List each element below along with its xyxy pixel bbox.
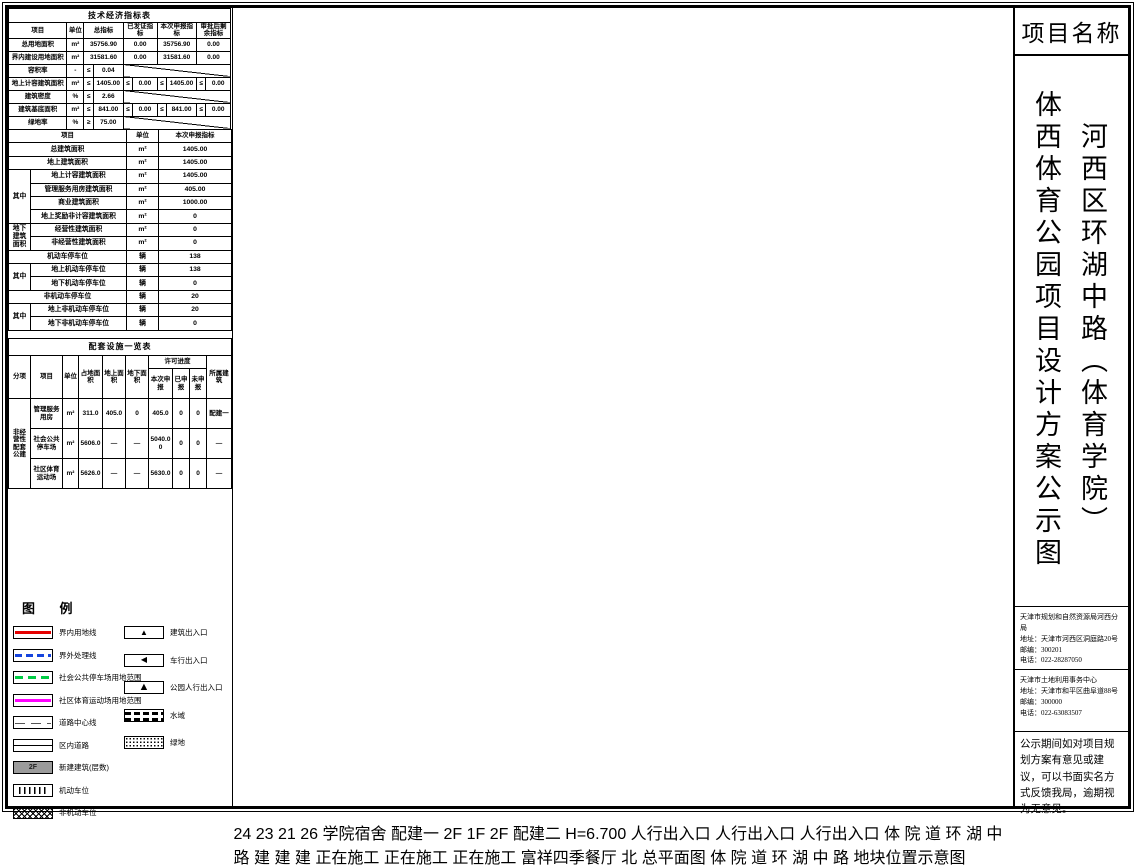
legend-water-swatch-icon bbox=[124, 709, 164, 722]
table-cell: ≤ bbox=[196, 103, 206, 116]
building-peijian-1: 配建一 2F 1F bbox=[391, 826, 490, 843]
pedestrian-entrance-icon: 人行出入口 人行出入口 人行出入口 bbox=[631, 826, 884, 843]
table-cell: 辆 bbox=[127, 317, 159, 330]
building-mark: 建 bbox=[254, 850, 270, 867]
agency2-postcode: 邮编：300000 bbox=[1020, 697, 1123, 708]
table-cell: ≤ bbox=[84, 103, 94, 116]
agency1-phone: 电话：022-28287050 bbox=[1020, 655, 1123, 666]
project-name-header: 项目名称 bbox=[1015, 8, 1128, 56]
legend-label: 公园人行出入口 bbox=[170, 682, 223, 693]
table-cell: — bbox=[126, 459, 149, 489]
table-cell: 405.0 bbox=[149, 399, 173, 429]
locmap-caption: 地块位置示意图 bbox=[853, 850, 965, 867]
table-cell: 0 bbox=[159, 277, 232, 290]
table-cell: 地下建筑面积 bbox=[9, 223, 31, 250]
table-cell: 本次申报 bbox=[149, 369, 173, 399]
agency2-name: 天津市土地利用事务中心 bbox=[1020, 675, 1123, 686]
legend-item: 区内道路 bbox=[13, 739, 142, 752]
table-cell: 辆 bbox=[127, 277, 159, 290]
table-cell: 经营性建筑面积 bbox=[31, 223, 127, 236]
legend-glyph-icon: ▲ bbox=[125, 627, 163, 638]
table-cell: 地下面积 bbox=[126, 356, 149, 399]
under-construction-label: 正在施工 bbox=[384, 850, 448, 867]
legend-item: 道路中心线 bbox=[13, 716, 142, 729]
table-cell: ≥ bbox=[84, 116, 94, 129]
building2-floor-label: 2F bbox=[490, 826, 509, 843]
pedestrian-entrance-icon: 人行出入口 人行出入口 人行出入口 bbox=[631, 826, 884, 843]
table-cell: 1405.00 bbox=[93, 77, 123, 90]
legend-item: 社区体育运动场用地范围 bbox=[13, 694, 142, 707]
table-cell: 总指标 bbox=[84, 23, 123, 39]
table-cell: 0.00 bbox=[196, 38, 230, 51]
north-arrow: 北 bbox=[621, 850, 641, 867]
table-cell: 占地面积 bbox=[79, 356, 103, 399]
table-cell: 商业建筑面积 bbox=[31, 196, 127, 209]
table-cell: 405.0 bbox=[103, 399, 126, 429]
left-panel: 技术经济指标表项目单位总指标已发证指标本次申报指标审批后剩余指标总用地面积m²3… bbox=[8, 8, 233, 806]
table-cell: 地上非机动车停车位 bbox=[31, 304, 127, 317]
entrance-label: 人行出入口 bbox=[800, 826, 880, 843]
table-cell: 0 bbox=[159, 223, 232, 236]
table-cell: 单位 bbox=[67, 23, 84, 39]
table-cell: 未申报 bbox=[190, 369, 207, 399]
table-cell: 辆 bbox=[127, 263, 159, 276]
table-cell: 0.00 bbox=[123, 51, 157, 64]
legend-label: 区内道路 bbox=[59, 740, 89, 751]
table-cell: 0 bbox=[173, 459, 190, 489]
table-cell: m² bbox=[127, 183, 159, 196]
table-cell: 社会公共停车场 bbox=[31, 429, 63, 459]
table-cell: m² bbox=[127, 196, 159, 209]
table-cell: 841.00 bbox=[93, 103, 123, 116]
table-cell: 地下非机动车停车位 bbox=[31, 317, 127, 330]
locmap-road-char: 院 bbox=[731, 850, 747, 867]
table-cell: 2.66 bbox=[93, 90, 123, 103]
table-cell: 所属建筑 bbox=[207, 356, 232, 399]
table-cell: 机动车停车位 bbox=[9, 250, 127, 263]
table-cell: 1405.00 bbox=[159, 143, 232, 156]
legend-right-column: ▲建筑出入口◀车行出入口▲公园人行出入口水域绿地 bbox=[124, 626, 223, 749]
legend: 图 例 界内用地线界外处理线社会公共停车场用地范围社区体育运动场用地范围道路中心… bbox=[8, 592, 232, 806]
legend-item: ◀车行出入口 bbox=[124, 654, 223, 667]
table-cell: 1405.00 bbox=[159, 170, 232, 183]
road-huanhu-char: 环 bbox=[945, 826, 961, 843]
vehicle-entrance-icon: 人行出入口 人行出入口 人行出入口 bbox=[631, 826, 884, 843]
public-notice-text: 公示期间如对项目规划方案有意见或建议，可以书面实名方式反馈我局，逾期视为无意见。 bbox=[1015, 731, 1128, 806]
legend-magenta-swatch-icon bbox=[13, 694, 53, 707]
legend-item: 绿地 bbox=[124, 736, 223, 749]
table-cell: 0.00 bbox=[123, 38, 157, 51]
legend-vent-swatch-icon: ◀ bbox=[124, 654, 164, 667]
restaurant-label: 富祥四季餐厅 bbox=[521, 850, 617, 867]
location-parcel: 体 院 道 环 湖 中 路 地块位置示意图 bbox=[710, 850, 965, 867]
table-cell: 审批后剩余指标 bbox=[196, 23, 230, 39]
table-cell: 其中 bbox=[9, 263, 31, 290]
road-huanhu-char: 中 bbox=[986, 826, 1002, 843]
legend-left-column: 界内用地线界外处理线社会公共停车场用地范围社区体育运动场用地范围道路中心线区内道… bbox=[13, 626, 142, 819]
facility-list-table: 配套设施一览表分项项目单位占地面积地上面积地下面积许可进度所属建筑本次申报已申报… bbox=[8, 338, 232, 489]
table-cell: 841.00 bbox=[167, 103, 197, 116]
agency2-phone: 电话：022-63083507 bbox=[1020, 708, 1123, 719]
table-title: 配套设施一览表 bbox=[9, 339, 232, 356]
project-title-line2: 体西体育公园项目设计方案公示图 bbox=[1027, 90, 1066, 570]
table-cell: m² bbox=[67, 38, 84, 51]
building2-height-label: H=6.700 bbox=[565, 826, 626, 843]
locmap-road-char: 中 bbox=[813, 850, 829, 867]
table-cell: m² bbox=[63, 429, 79, 459]
table-cell: 建筑密度 bbox=[9, 90, 67, 103]
table-cell: m² bbox=[127, 143, 159, 156]
table-cell: — bbox=[207, 429, 232, 459]
table-cell: 5626.0 bbox=[79, 459, 103, 489]
table-cell: 本次申报指标 bbox=[159, 130, 232, 143]
table-title: 技术经济指标表 bbox=[9, 9, 231, 23]
road-tiyuandao-char: 体 bbox=[884, 826, 900, 843]
table-cell: 非经营性建筑面积 bbox=[31, 237, 127, 250]
table-cell: 单位 bbox=[127, 130, 159, 143]
legend-green-swatch-icon bbox=[13, 671, 53, 684]
plan-caption: 总平面图 bbox=[642, 850, 710, 867]
table-cell: 138 bbox=[159, 263, 232, 276]
table-cell: 分项 bbox=[9, 356, 31, 399]
project-title-line1: 河西区环湖中路（体育学院） bbox=[1073, 122, 1112, 538]
table-cell: ≤ bbox=[157, 103, 167, 116]
table-cell: 容积率 bbox=[9, 64, 67, 77]
agency1-name: 天津市规划和自然资源局河西分局 bbox=[1020, 612, 1123, 634]
legend-red-swatch-icon bbox=[13, 626, 53, 639]
building1-floor1-label: 1F bbox=[467, 826, 486, 843]
road-huanhu-char: 湖 bbox=[966, 826, 982, 843]
vehicle-entrance-icon: 人行出入口 人行出入口 人行出入口 bbox=[631, 826, 884, 843]
table-cell: 配建一 bbox=[207, 399, 232, 429]
legend-item: ▲公园人行出入口 bbox=[124, 681, 223, 694]
table-cell: % bbox=[67, 116, 84, 129]
table-cell: 地上奖励非计容建筑面积 bbox=[31, 210, 127, 223]
table-cell: m² bbox=[67, 77, 84, 90]
table-cell: 地上面积 bbox=[103, 356, 126, 399]
block-number: 26 bbox=[300, 826, 318, 843]
table-cell: 311.0 bbox=[79, 399, 103, 429]
table-cell: ≤ bbox=[84, 64, 94, 77]
table-cell: 管理服务用房建筑面积 bbox=[31, 183, 127, 196]
legend-center-swatch-icon bbox=[13, 716, 53, 729]
table-cell: 35756.90 bbox=[157, 38, 196, 51]
table-cell: 0 bbox=[173, 399, 190, 429]
table-cell bbox=[123, 90, 230, 103]
legend-label: 绿地 bbox=[170, 737, 185, 748]
table-cell: 20 bbox=[159, 304, 232, 317]
table-cell: 31581.60 bbox=[157, 51, 196, 64]
locmap-road-char: 湖 bbox=[792, 850, 808, 867]
table-cell: ≤ bbox=[157, 77, 167, 90]
table-cell: 界内建设用地面积 bbox=[9, 51, 67, 64]
table-cell: 非经营性配套公建 bbox=[9, 399, 31, 489]
table-cell: 辆 bbox=[127, 250, 159, 263]
table-cell: 建筑基底面积 bbox=[9, 103, 67, 116]
table-cell: 辆 bbox=[127, 304, 159, 317]
vehicle-entrance-icon: 人行出入口 人行出入口 人行出入口 bbox=[631, 826, 884, 843]
table-cell: 地上机动车停车位 bbox=[31, 263, 127, 276]
legend-glyph-icon: 2F bbox=[14, 762, 52, 773]
table-cell: 地上计容建筑面积 bbox=[9, 77, 67, 90]
table-cell: 0.00 bbox=[133, 77, 157, 90]
legend-label: 机动车位 bbox=[59, 785, 89, 796]
entrance-label: 人行出入口 bbox=[631, 826, 711, 843]
legend-item: 界内用地线 bbox=[13, 626, 142, 639]
table-cell: 非机动车停车位 bbox=[9, 290, 127, 303]
locmap-road-char: 环 bbox=[772, 850, 788, 867]
legend-label: 界外处理线 bbox=[59, 650, 97, 661]
table-cell: 0 bbox=[126, 399, 149, 429]
road-tiyuandao-char: 道 bbox=[925, 826, 941, 843]
building2-label: 配建二 bbox=[513, 826, 561, 843]
table-cell: 0.00 bbox=[206, 77, 231, 90]
drawing-sheet: 技术经济指标表项目单位总指标已发证指标本次申报指标审批后剩余指标总用地面积m²3… bbox=[5, 5, 1131, 809]
dormitory-label: 学院宿舍 bbox=[323, 826, 387, 843]
agency2-address: 地址：天津市和平区曲阜道88号 bbox=[1020, 686, 1123, 697]
table-cell: — bbox=[126, 429, 149, 459]
agency-block-1: 天津市规划和自然资源局河西分局 地址：天津市河西区洞庭路20号 邮编：30020… bbox=[1015, 606, 1128, 670]
table-cell: 绿地率 bbox=[9, 116, 67, 129]
table-cell: 405.00 bbox=[159, 183, 232, 196]
under-construction-label: 正在施工 bbox=[452, 850, 516, 867]
locmap-road-char: 道 bbox=[751, 850, 767, 867]
legend-nonmotor-swatch-icon bbox=[13, 806, 53, 819]
legend-greenarea-swatch-icon bbox=[124, 736, 164, 749]
table-cell: 5040.00 bbox=[149, 429, 173, 459]
table-cell: 其中 bbox=[9, 170, 31, 224]
table-cell: 其中 bbox=[9, 304, 31, 331]
legend-label: 新建建筑(层数) bbox=[59, 762, 109, 773]
table-cell: 0 bbox=[190, 459, 207, 489]
table-cell: m² bbox=[67, 103, 84, 116]
building-peijian-2: 2F 配建二 H=6.700 bbox=[490, 826, 631, 843]
table-cell: 地上建筑面积 bbox=[9, 156, 127, 169]
table-cell: 0.00 bbox=[196, 51, 230, 64]
table-cell: 5606.0 bbox=[79, 429, 103, 459]
table-cell: 138 bbox=[159, 250, 232, 263]
legend-label: 道路中心线 bbox=[59, 717, 97, 728]
table-cell: 0 bbox=[190, 429, 207, 459]
table-cell: 0.00 bbox=[206, 103, 231, 116]
table-cell: ≤ bbox=[196, 77, 206, 90]
table-cell: 项目 bbox=[31, 356, 63, 399]
legend-label: 非机动车位 bbox=[59, 807, 97, 818]
location-map: 体 院 道 环 湖 中 路 地块位置示意图 bbox=[710, 850, 965, 867]
table-cell: m² bbox=[63, 399, 79, 429]
tech-indicators-table: 技术经济指标表项目单位总指标已发证指标本次申报指标审批后剩余指标总用地面积m²3… bbox=[8, 8, 231, 146]
table-cell: m² bbox=[127, 237, 159, 250]
table-cell: 单位 bbox=[63, 356, 79, 399]
table-cell: ≤ bbox=[123, 103, 133, 116]
block-number: 23 bbox=[256, 826, 274, 843]
table-cell: 社区体育运动场 bbox=[31, 459, 63, 489]
table-cell: 已发证指标 bbox=[123, 23, 157, 39]
table-cell: 1405.00 bbox=[167, 77, 197, 90]
legend-title: 图 例 bbox=[22, 598, 74, 617]
table-cell: 地下机动车停车位 bbox=[31, 277, 127, 290]
table-cell: m² bbox=[127, 223, 159, 236]
legend-glyph-icon: ◀ bbox=[125, 655, 163, 666]
table-cell: - bbox=[67, 64, 84, 77]
block-number: 24 bbox=[234, 826, 252, 843]
table-cell: 0 bbox=[159, 317, 232, 330]
table-cell: 5630.0 bbox=[149, 459, 173, 489]
table-cell: — bbox=[103, 429, 126, 459]
legend-glyph-icon: ▲ bbox=[125, 682, 163, 693]
north-label: 北 bbox=[621, 850, 637, 867]
table-cell: 总用地面积 bbox=[9, 38, 67, 51]
legend-newbld-swatch-icon: 2F bbox=[13, 761, 53, 774]
legend-item: ▲建筑出入口 bbox=[124, 626, 223, 639]
project-title: 河西区环湖中路（体育学院） 体西体育公园项目设计方案公示图 bbox=[1015, 56, 1128, 604]
agency-block-2: 天津市土地利用事务中心 地址：天津市和平区曲阜道88号 邮编：300000 电话… bbox=[1015, 669, 1128, 732]
entrance-label: 人行出入口 bbox=[715, 826, 795, 843]
table-cell: m² bbox=[127, 156, 159, 169]
table-cell: m² bbox=[63, 459, 79, 489]
road-huanhu-char: 路 bbox=[234, 850, 250, 867]
legend-pent-swatch-icon: ▲ bbox=[124, 681, 164, 694]
site-plan-drawing bbox=[234, 8, 1011, 804]
legend-label: 水域 bbox=[170, 710, 185, 721]
table-cell: 辆 bbox=[127, 290, 159, 303]
legend-label: 界内用地线 bbox=[59, 627, 97, 638]
table-cell: — bbox=[103, 459, 126, 489]
table-cell: ≤ bbox=[84, 90, 94, 103]
declared-areas-table: 项目单位本次申报指标总建筑面积m²1405.00地上建筑面积m²1405.00其… bbox=[8, 129, 232, 331]
table-cell: 地上计容建筑面积 bbox=[31, 170, 127, 183]
legend-item: 社会公共停车场用地范围 bbox=[13, 671, 142, 684]
legend-label: 车行出入口 bbox=[170, 655, 208, 666]
locmap-road-char: 体 bbox=[710, 850, 726, 867]
table-cell: 0 bbox=[173, 429, 190, 459]
table-cell: 1405.00 bbox=[159, 156, 232, 169]
legend-item: 2F新建建筑(层数) bbox=[13, 761, 142, 774]
legend-innerroad-swatch-icon bbox=[13, 739, 53, 752]
legend-item: 界外处理线 bbox=[13, 649, 142, 662]
table-cell: 许可进度 bbox=[149, 356, 207, 369]
locmap-road-char: 路 bbox=[833, 850, 849, 867]
table-cell: 0.00 bbox=[133, 103, 157, 116]
table-cell: 0 bbox=[159, 237, 232, 250]
legend-bent-swatch-icon: ▲ bbox=[124, 626, 164, 639]
table-cell: 管理服务用房 bbox=[31, 399, 63, 429]
table-cell: m² bbox=[127, 170, 159, 183]
legend-parking-swatch-icon bbox=[13, 784, 53, 797]
agency1-postcode: 邮编：300201 bbox=[1020, 645, 1123, 656]
table-cell: ≤ bbox=[84, 77, 94, 90]
building-mark: 建 bbox=[295, 850, 311, 867]
table-cell: 本次申报指标 bbox=[157, 23, 196, 39]
pedestrian-entrance-icon: 人行出入口 人行出入口 人行出入口 bbox=[631, 826, 884, 843]
legend-item: 水域 bbox=[124, 709, 223, 722]
table-cell: 项目 bbox=[9, 23, 67, 39]
table-cell: 项目 bbox=[9, 130, 127, 143]
building1-floor-label: 2F bbox=[443, 826, 462, 843]
road-tiyuandao-char: 院 bbox=[905, 826, 921, 843]
legend-item: 非机动车位 bbox=[13, 806, 142, 819]
table-cell: % bbox=[67, 90, 84, 103]
legend-item: 机动车位 bbox=[13, 784, 142, 797]
under-construction-label: 正在施工 bbox=[315, 850, 379, 867]
building-mark: 建 bbox=[274, 850, 290, 867]
site-plan-area: 24 23 21 26 学院宿舍 bbox=[234, 8, 1011, 804]
block-number: 21 bbox=[278, 826, 296, 843]
table-cell bbox=[123, 64, 230, 77]
table-cell: 0.04 bbox=[93, 64, 123, 77]
table-cell: 0 bbox=[190, 399, 207, 429]
entrance-markers: 人行出入口 人行出入口 人行出入口 bbox=[631, 826, 884, 843]
legend-blue-swatch-icon bbox=[13, 649, 53, 662]
table-cell: 20 bbox=[159, 290, 232, 303]
table-cell: 已申报 bbox=[173, 369, 190, 399]
table-cell: 0 bbox=[159, 210, 232, 223]
table-cell bbox=[123, 116, 230, 129]
table-cell: 31581.60 bbox=[84, 51, 123, 64]
table-cell: ≤ bbox=[123, 77, 133, 90]
table-cell: 1000.00 bbox=[159, 196, 232, 209]
agency1-address: 地址：天津市河西区洞庭路20号 bbox=[1020, 634, 1123, 645]
table-cell: m² bbox=[127, 210, 159, 223]
table-cell: 35756.90 bbox=[84, 38, 123, 51]
table-cell: — bbox=[207, 459, 232, 489]
title-block: 项目名称 河西区环湖中路（体育学院） 体西体育公园项目设计方案公示图 天津市规划… bbox=[1013, 8, 1128, 806]
building1-label: 配建一 bbox=[391, 826, 439, 843]
table-cell: 总建筑面积 bbox=[9, 143, 127, 156]
table-cell: m² bbox=[67, 51, 84, 64]
table-cell: 75.00 bbox=[93, 116, 123, 129]
legend-label: 建筑出入口 bbox=[170, 627, 208, 638]
